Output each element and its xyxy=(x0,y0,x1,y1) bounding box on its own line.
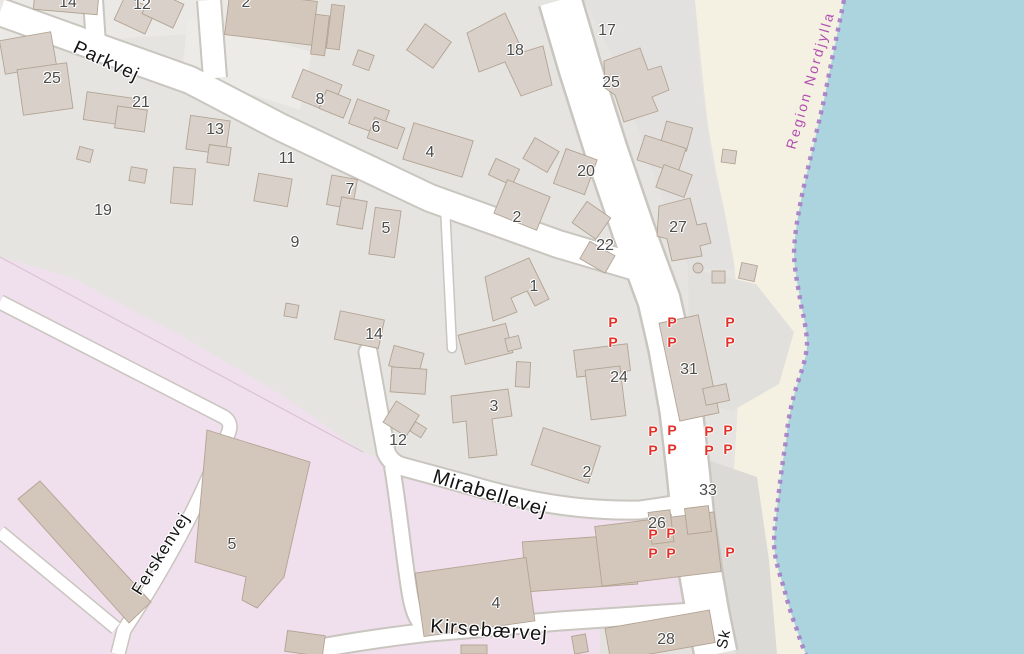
house-number-label: 22 xyxy=(596,237,614,255)
house-number-label: 12 xyxy=(133,0,151,14)
parking-icon: P xyxy=(666,525,675,541)
map-labels-layer: 1412225211311199864751821725202722114243… xyxy=(0,0,1024,654)
house-number-label: 8 xyxy=(316,91,325,109)
house-number-label: 18 xyxy=(506,42,524,60)
parking-icon: P xyxy=(704,423,713,439)
parking-icon: P xyxy=(648,526,657,542)
house-number-label: 2 xyxy=(513,209,522,227)
house-number-label: 3 xyxy=(490,398,499,416)
house-number-label: 25 xyxy=(602,74,620,92)
parking-icon: P xyxy=(608,334,617,350)
house-number-label: 6 xyxy=(372,119,381,137)
parking-icon: P xyxy=(608,314,617,330)
map[interactable]: 1412225211311199864751821725202722114243… xyxy=(0,0,1024,654)
house-number-label: 19 xyxy=(94,202,112,220)
house-number-label: 13 xyxy=(206,121,224,139)
house-number-label: 7 xyxy=(346,181,355,199)
parking-icon: P xyxy=(648,442,657,458)
street-label-sk: Sk xyxy=(714,628,735,651)
parking-icon: P xyxy=(667,422,676,438)
house-number-label: 5 xyxy=(228,536,237,554)
house-number-label: 21 xyxy=(132,94,150,112)
house-number-label: 1 xyxy=(530,278,539,296)
house-number-label: 9 xyxy=(291,234,300,252)
parking-icon: P xyxy=(723,441,732,457)
house-number-label: 26 xyxy=(648,515,666,533)
parking-icon: P xyxy=(648,545,657,561)
parking-icon: P xyxy=(723,422,732,438)
parking-icon: P xyxy=(667,314,676,330)
house-number-label: 2 xyxy=(242,0,251,12)
street-label-mirabellevej: Mirabellevej xyxy=(430,466,550,523)
house-number-label: 31 xyxy=(680,361,698,379)
parking-icon: P xyxy=(667,334,676,350)
house-number-label: 28 xyxy=(657,631,675,649)
street-label-parkvej: Parkvej xyxy=(69,37,142,87)
house-number-label: 12 xyxy=(389,432,407,450)
parking-icon: P xyxy=(725,544,734,560)
region-boundary-label: Region Nordjylla xyxy=(783,9,838,151)
parking-icon: P xyxy=(725,314,734,330)
parking-icon: P xyxy=(648,423,657,439)
house-number-label: 33 xyxy=(699,482,717,500)
parking-icon: P xyxy=(725,334,734,350)
house-number-label: 11 xyxy=(279,150,296,168)
house-number-label: 25 xyxy=(43,70,61,88)
house-number-label: 14 xyxy=(59,0,77,12)
street-label-kirsebrvej: Kirsebærvej xyxy=(429,615,548,646)
house-number-label: 4 xyxy=(426,144,435,162)
house-number-label: 4 xyxy=(492,595,501,613)
house-number-label: 17 xyxy=(598,22,616,40)
house-number-label: 2 xyxy=(583,464,592,482)
house-number-label: 24 xyxy=(610,369,628,387)
house-number-label: 14 xyxy=(365,326,383,344)
house-number-label: 20 xyxy=(577,163,595,181)
parking-icon: P xyxy=(666,545,675,561)
house-number-label: 27 xyxy=(669,219,687,237)
parking-icon: P xyxy=(704,442,713,458)
parking-icon: P xyxy=(667,441,676,457)
house-number-label: 5 xyxy=(382,220,391,238)
street-label-ferskenvej: Ferskenvej xyxy=(128,509,194,599)
